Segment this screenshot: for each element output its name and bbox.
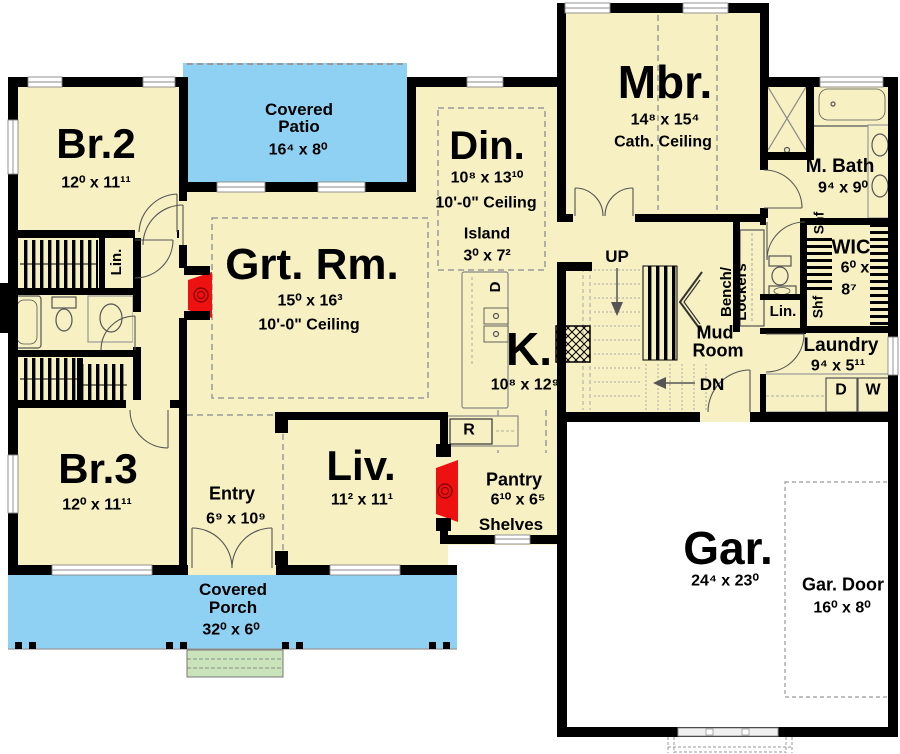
room-label-kitchen: K. [506,325,552,373]
room-label-mud-2: Room [693,342,744,361]
room-dims-laundry: 9⁴ x 5¹¹ [811,359,865,376]
room-dims-liv: 11² x 11¹ [331,493,393,510]
up-label: UP [605,248,629,266]
range-label: R [463,423,475,440]
room-dims-din: 10⁸ x 13¹⁰ [451,171,524,188]
garage-door-label: Gar. Door [802,576,884,595]
patio-dims: 16⁴ x 8⁰ [269,143,328,160]
front-steps [187,650,283,677]
washer-label: W [865,383,880,400]
room-dims-garage: 24⁴ x 23⁰ [691,574,759,591]
floor-plan: Br.2 12⁰ x 11¹¹ Br.3 12⁰ x 11¹¹ Grt. Rm.… [0,0,900,754]
room-dims-wic-1: 6⁰ x [841,261,870,278]
room-dims-br3: 12⁰ x 11¹¹ [62,498,132,515]
wic-shelf-icon [806,238,832,294]
room-dims-wic-2: 8⁷ [841,283,857,300]
floor-plan-drawing [0,0,900,754]
linen-closet-label: Lin. [109,249,125,276]
room-label-liv: Liv. [326,444,395,488]
room-dims-kitchen: 10⁸ x 12⁹ [491,378,560,395]
room-dims-mbr: 14⁸ x 15⁴ [631,113,700,130]
room-label-mbr: Mbr. [618,58,713,106]
toilet-icon [769,256,791,266]
shelf-label-1: Shf [812,212,827,235]
ceiling-note-mbr: Cath. Ceiling [614,135,712,152]
room-label-laundry: Laundry [804,336,879,356]
room-dims-mbath: 9⁴ x 9⁰ [818,181,868,198]
dishwasher-label: D [488,282,504,293]
ceiling-note-din: 10'-0" Ceiling [435,196,536,213]
porch-label-2: Porch [209,599,257,617]
ceiling-note-grt: 10'-0" Ceiling [258,318,359,335]
room-label-entry: Entry [209,485,255,504]
room-label-mbath: M. Bath [806,157,875,177]
dn-label: DN [700,376,725,394]
garage-door [678,728,778,736]
dryer-label: D [835,383,847,400]
room-dims-entry: 6⁹ x 10⁹ [206,512,266,529]
room-dims-pantry: 6¹⁰ x 6⁵ [491,493,546,510]
room-label-wic: WIC [832,238,871,259]
shelf-label-2: Shf [811,296,826,319]
room-label-grt: Grt. Rm. [225,242,399,288]
room-label-garage: Gar. [683,524,773,572]
room-dims-grt: 15⁰ x 16³ [277,294,342,311]
toilet-icon [52,297,76,308]
fireplace-icon [436,460,458,522]
room-label-br2: Br.2 [56,122,135,166]
patio-label-2: Patio [278,118,320,136]
island-label: Island [464,227,510,244]
stair-upper-flight-hatch [643,266,677,360]
room-label-pantry: Pantry [486,471,542,490]
room-dims-br2: 12⁰ x 11¹¹ [61,176,131,193]
linen-closet-label-2: Lin. [770,304,797,320]
bench-lockers-label: Bench/ Lockers [719,263,749,321]
garage-door-dims: 16⁰ x 8⁰ [813,601,870,618]
room-label-din: Din. [449,125,525,167]
room-label-br3: Br.3 [58,447,137,491]
island-dims: 3⁰ x 7² [463,249,510,266]
porch-dims: 32⁰ x 6⁰ [202,623,259,640]
porch-label-1: Covered [199,581,267,599]
pantry-shelves-note: Shelves [479,516,543,534]
